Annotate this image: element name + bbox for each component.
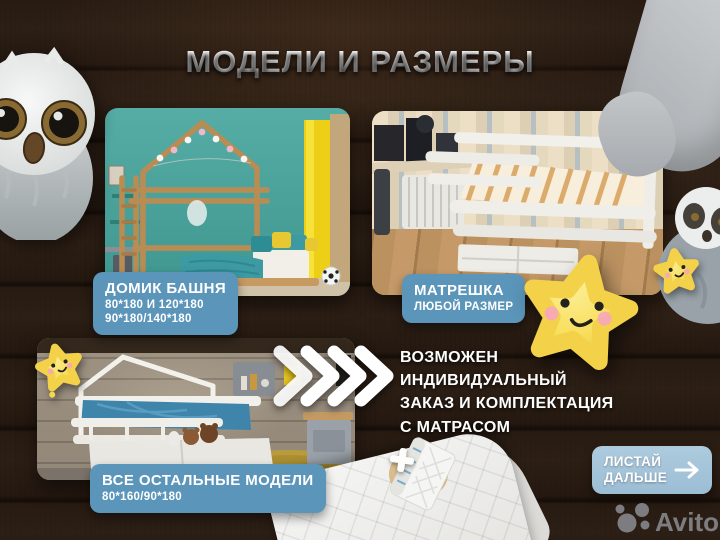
badge-size-line: 80*180 И 120*180 [105,298,226,312]
promo-slide: МОДЕЛИ И РАЗМЕРЫ [0,0,720,540]
badge-other-models: ВСЕ ОСТАЛЬНЫЕ МОДЕЛИ 80*160/90*180 [90,464,326,513]
badge-size-line: 80*160/90*180 [102,490,314,504]
chevron-right-icon [270,343,404,409]
owl-eye-icon [42,101,86,145]
note-line: С МАТРАСОМ [400,416,613,439]
next-button-line1: ЛИСТАЙ [604,454,667,470]
badge-domik-bashnya: ДОМИК БАШНЯ 80*180 И 120*180 90*180/140*… [93,272,238,335]
arrow-right-icon [674,461,700,479]
badge-size-line: 90*180/140*180 [105,312,226,326]
star-plush-small-right-icon [648,243,706,301]
house-bunk-bed-scene [105,108,350,296]
avito-wordmark: Avito [655,507,718,537]
page-title: МОДЕЛИ И РАЗМЕРЫ [0,44,720,80]
plush-bunny-icon [168,431,180,447]
star-plush-small-left-icon [30,338,90,400]
star-plush-large-icon [498,238,658,394]
plus-icon [388,446,416,474]
football-icon [322,267,340,285]
badge-label: ДОМИК БАШНЯ [105,280,226,298]
next-button-line2: ДАЛЬШЕ [604,470,667,486]
note-line: ЗАКАЗ И КОМПЛЕКТАЦИЯ [400,392,613,415]
next-slide-button[interactable]: ЛИСТАЙ ДАЛЬШЕ [592,446,712,494]
badge-label: ВСЕ ОСТАЛЬНЫЕ МОДЕЛИ [102,472,314,490]
avito-logo: Avito [608,499,718,537]
photo-domik-bashnya [105,108,350,296]
moomin-decal-icon [187,200,207,226]
